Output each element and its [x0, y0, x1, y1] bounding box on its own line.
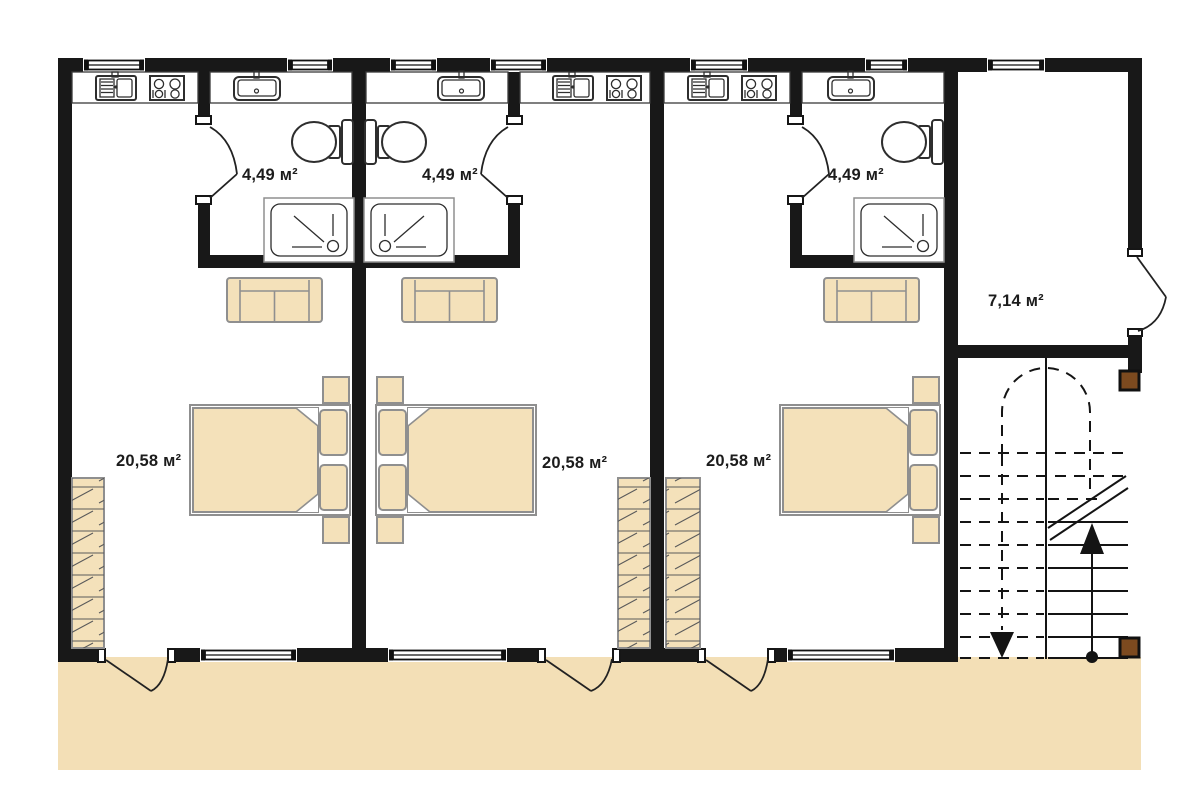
door-swing-icon	[1128, 249, 1166, 336]
sofa-icon	[824, 278, 919, 322]
stove-icon	[150, 76, 184, 100]
bedroom-area-label-1: 20,58 м²	[116, 452, 181, 471]
unit-2	[364, 71, 650, 648]
window-icon	[787, 648, 895, 662]
bed-icon	[190, 377, 350, 543]
shower-icon	[854, 198, 944, 262]
bedroom-area-label-3: 20,58 м²	[706, 452, 771, 471]
kitchen-sink-icon	[553, 72, 593, 100]
bathroom-area-label-3: 4,49 м²	[828, 166, 884, 185]
hall-area-label: 7,14 м²	[988, 292, 1044, 311]
window-icon	[388, 648, 507, 662]
wardrobe-icon	[72, 478, 104, 648]
floor-plan-canvas	[0, 0, 1200, 806]
bed-mirrored	[376, 377, 536, 543]
window-icon	[865, 58, 908, 72]
kitchen-sink-icon	[688, 72, 728, 100]
post-icon	[1120, 371, 1139, 390]
nightstand-icon	[323, 517, 349, 543]
shower-icon	[364, 198, 454, 262]
stair-down-arrow-icon	[990, 455, 1014, 658]
unit-3	[664, 71, 944, 648]
unit-1	[72, 71, 354, 648]
floor-plan: 4,49 м² 4,49 м² 4,49 м² 20,58 м² 20,58 м…	[0, 0, 1200, 806]
outer-walls	[58, 58, 1142, 662]
window-icon	[490, 58, 547, 72]
stove-icon	[742, 76, 776, 100]
terrace	[58, 657, 1141, 770]
bedroom-area-label-2: 20,58 м²	[542, 454, 607, 473]
shower-icon	[264, 198, 354, 262]
post-icon	[1120, 638, 1139, 657]
stair-cut-line	[1048, 476, 1128, 540]
bathroom-area-label-2: 4,49 м²	[422, 166, 478, 185]
window-icon	[690, 58, 748, 72]
bed-icon	[780, 377, 940, 543]
bed-icon	[376, 377, 536, 543]
window-icon	[200, 648, 297, 662]
window-icon	[287, 58, 333, 72]
bathroom-door-swing-icon	[196, 116, 237, 204]
window-icon	[390, 58, 437, 72]
window-icon	[83, 58, 145, 72]
stove-icon	[607, 76, 641, 100]
pillow-icon	[320, 465, 347, 510]
wardrobe-icon	[666, 478, 700, 648]
toilet-icon	[292, 120, 353, 164]
window-icon	[987, 58, 1045, 72]
toilet-icon	[882, 120, 943, 164]
bathroom-door-swing-icon	[481, 116, 522, 204]
pillow-icon	[320, 410, 347, 455]
stairs-icon	[960, 358, 1139, 663]
bathroom-area-label-1: 4,49 м²	[242, 166, 298, 185]
toilet-icon	[365, 120, 426, 164]
nightstand-icon	[323, 377, 349, 403]
bathroom-door-swing-icon	[788, 116, 829, 204]
sofa-icon	[227, 278, 322, 322]
wardrobe-icon	[618, 478, 650, 648]
sofa-icon	[402, 278, 497, 322]
kitchen-sink-icon	[96, 72, 136, 100]
